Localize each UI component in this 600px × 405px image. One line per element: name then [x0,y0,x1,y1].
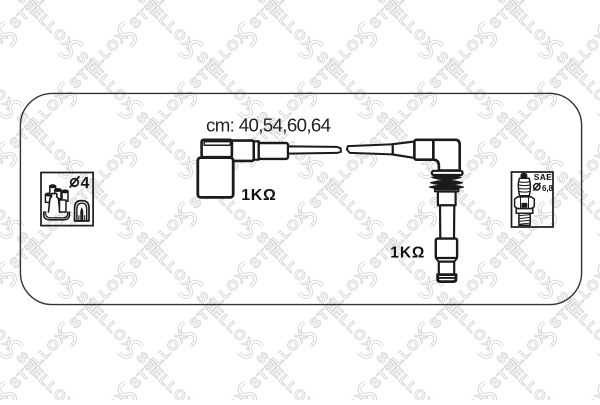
svg-text:cm: 40,54,60,64: cm: 40,54,60,64 [206,114,331,135]
svg-text:1KΩ: 1KΩ [241,187,276,204]
svg-text:1KΩ: 1KΩ [390,244,425,261]
svg-text:4: 4 [81,175,90,192]
svg-text:SAE: SAE [534,172,552,182]
svg-text:6,8: 6,8 [542,184,554,193]
